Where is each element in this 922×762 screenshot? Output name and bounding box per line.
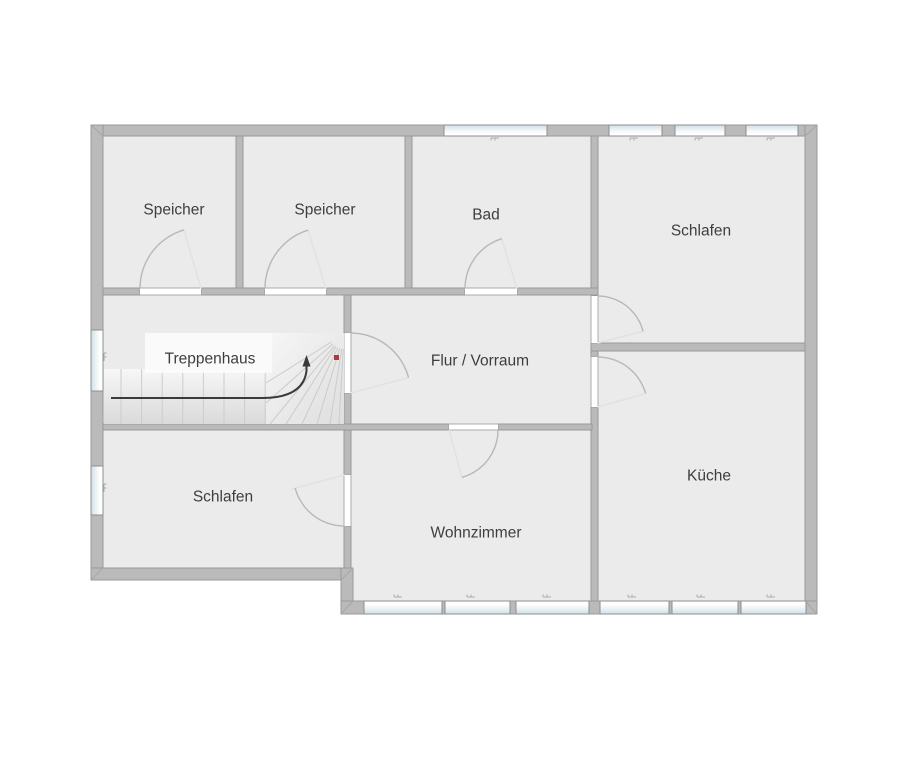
- svg-text:Bad: Bad: [472, 207, 500, 224]
- svg-text:Flur / Vorraum: Flur / Vorraum: [431, 353, 529, 370]
- svg-text:Schlafen: Schlafen: [671, 223, 731, 240]
- svg-text:Treppenhaus: Treppenhaus: [165, 351, 256, 368]
- svg-text:Schlafen: Schlafen: [193, 489, 253, 506]
- svg-text:Speicher: Speicher: [143, 202, 204, 219]
- svg-text:Speicher: Speicher: [294, 202, 355, 219]
- svg-text:Wohnzimmer: Wohnzimmer: [430, 525, 521, 542]
- svg-text:Küche: Küche: [687, 468, 731, 485]
